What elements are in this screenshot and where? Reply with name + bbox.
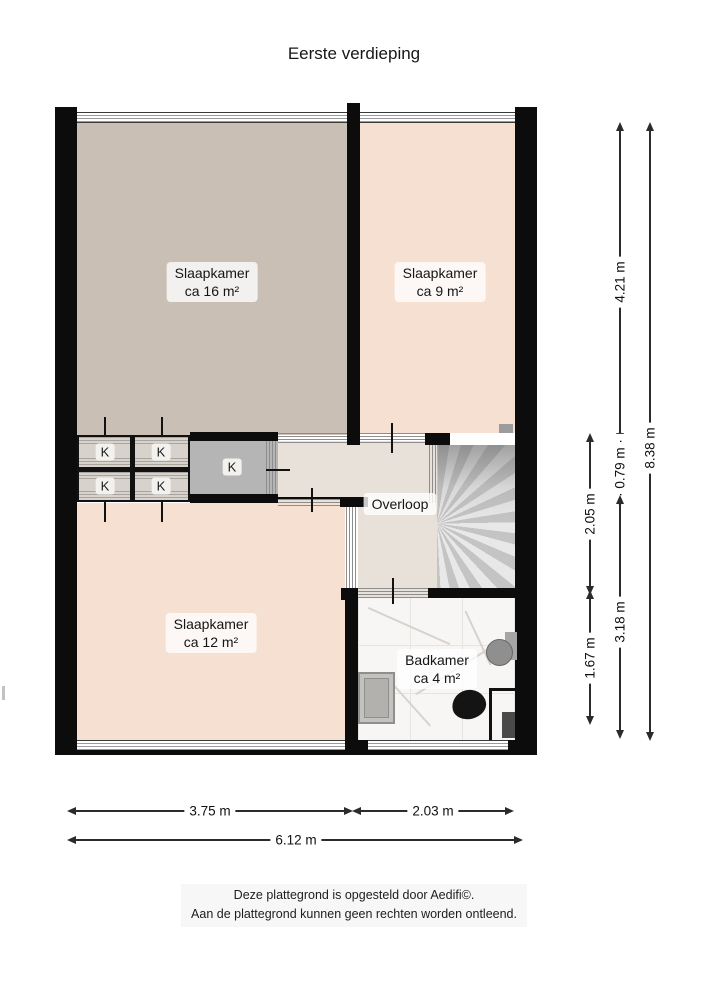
radiator-small: [499, 424, 513, 433]
radiator-inner: [364, 678, 389, 718]
closet-k-label: K: [152, 478, 171, 495]
bedroom16-label: Slaapkamer ca 16 m²: [167, 262, 258, 302]
dim-label-4-21: 4.21 m: [613, 256, 628, 307]
room-name: Slaapkamer: [174, 615, 249, 633]
marble-vein: [367, 607, 450, 645]
dim-label-3-75: 3.75 m: [184, 804, 235, 819]
sink: [486, 639, 513, 666]
room-name: Slaapkamer: [403, 264, 478, 282]
page-title: Eerste verdieping: [0, 44, 708, 64]
dim-label-2-05: 2.05 m: [583, 488, 598, 539]
bedroom12-door-tick: [311, 488, 313, 512]
room-area: ca 12 m²: [174, 633, 249, 651]
bedroom12-label: Slaapkamer ca 12 m²: [166, 613, 257, 653]
shower-screen-vertical: [489, 688, 492, 740]
footer-disclaimer: Deze plattegrond is opgesteld door Aedif…: [181, 884, 527, 927]
dim-label-2-03: 2.03 m: [407, 804, 458, 819]
bedroom9-label: Slaapkamer ca 9 m²: [395, 262, 486, 302]
room-name: Badkamer: [405, 651, 469, 669]
watermark: [2, 686, 5, 700]
wall-bottom-strip: [55, 750, 537, 755]
wall-stub-stairs-top: [425, 433, 450, 445]
bathroom-label: Badkamer ca 4 m²: [397, 649, 477, 689]
window-top: [77, 112, 515, 123]
wall-bathroom-left: [345, 597, 358, 755]
walkin-k-label: K: [223, 459, 242, 476]
floor-plan-page: Eerste verdieping: [0, 0, 708, 1000]
closet-door-tick: [161, 500, 163, 522]
dim-label-8-38: 8.38 m: [643, 422, 658, 473]
dim-label-6-12: 6.12 m: [270, 833, 321, 848]
walkin-closet-wall-top: [190, 432, 278, 441]
closet-k-label: K: [96, 478, 115, 495]
walkin-door-tick: [266, 469, 290, 471]
stairs: [437, 445, 515, 588]
bedroom9-door-tick: [391, 423, 393, 453]
room-area: ca 16 m²: [175, 282, 250, 300]
room-area: ca 4 m²: [405, 669, 469, 687]
landing-floor-lower: [358, 503, 437, 597]
wall-bedroom-divider: [347, 103, 360, 445]
closet-door-tick: [161, 417, 163, 437]
shower-screen-horizontal: [489, 688, 515, 691]
wall-bathroom-top: [428, 588, 515, 598]
room-name: Overloop: [372, 495, 429, 513]
footer-line2: Aan de plattegrond kunnen geen rechten w…: [191, 905, 517, 924]
landing-opening-hatch: [278, 433, 347, 443]
wall-right: [515, 107, 537, 755]
dim-label-0-79: 0.79 m: [613, 434, 628, 502]
closet-door-tick: [104, 500, 106, 522]
wall-left: [55, 107, 77, 755]
bathroom-door-tick: [392, 578, 394, 604]
shower-tray: [502, 712, 515, 738]
room-name: Slaapkamer: [175, 264, 250, 282]
footer-line1: Deze plattegrond is opgesteld door Aedif…: [191, 886, 517, 905]
bedroom12-landing-door-hatch: [346, 507, 357, 588]
landing-label: Overloop: [364, 493, 437, 515]
walkin-closet-door-hatch: [266, 441, 278, 494]
closet-door-tick: [104, 417, 106, 437]
closet-k-label: K: [96, 444, 115, 461]
closet-k-label: K: [152, 444, 171, 461]
walkin-closet-wall-bottom: [190, 494, 278, 503]
dim-label-1-67: 1.67 m: [583, 632, 598, 683]
room-area: ca 9 m²: [403, 282, 478, 300]
radiator: [358, 672, 395, 724]
dim-label-3-18: 3.18 m: [613, 596, 628, 647]
